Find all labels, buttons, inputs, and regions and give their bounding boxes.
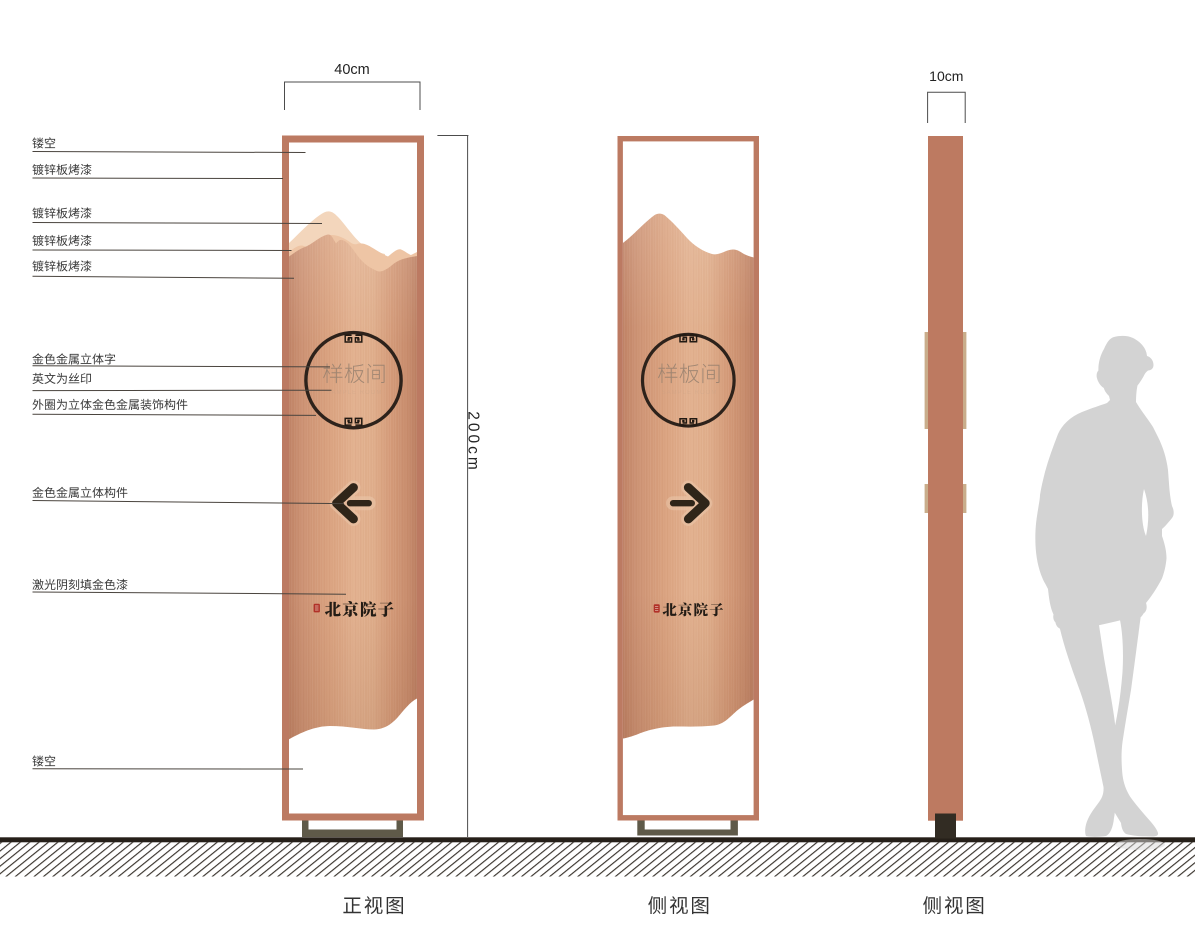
svg-text:40cm: 40cm [334, 62, 369, 78]
svg-text:10cm: 10cm [929, 68, 963, 84]
svg-text:200cm: 200cm [465, 411, 482, 473]
svg-text:SAMPLE ROOM: SAMPLE ROOM [327, 390, 383, 396]
svg-text:SAMPLE ROOM: SAMPLE ROOM [662, 390, 718, 396]
